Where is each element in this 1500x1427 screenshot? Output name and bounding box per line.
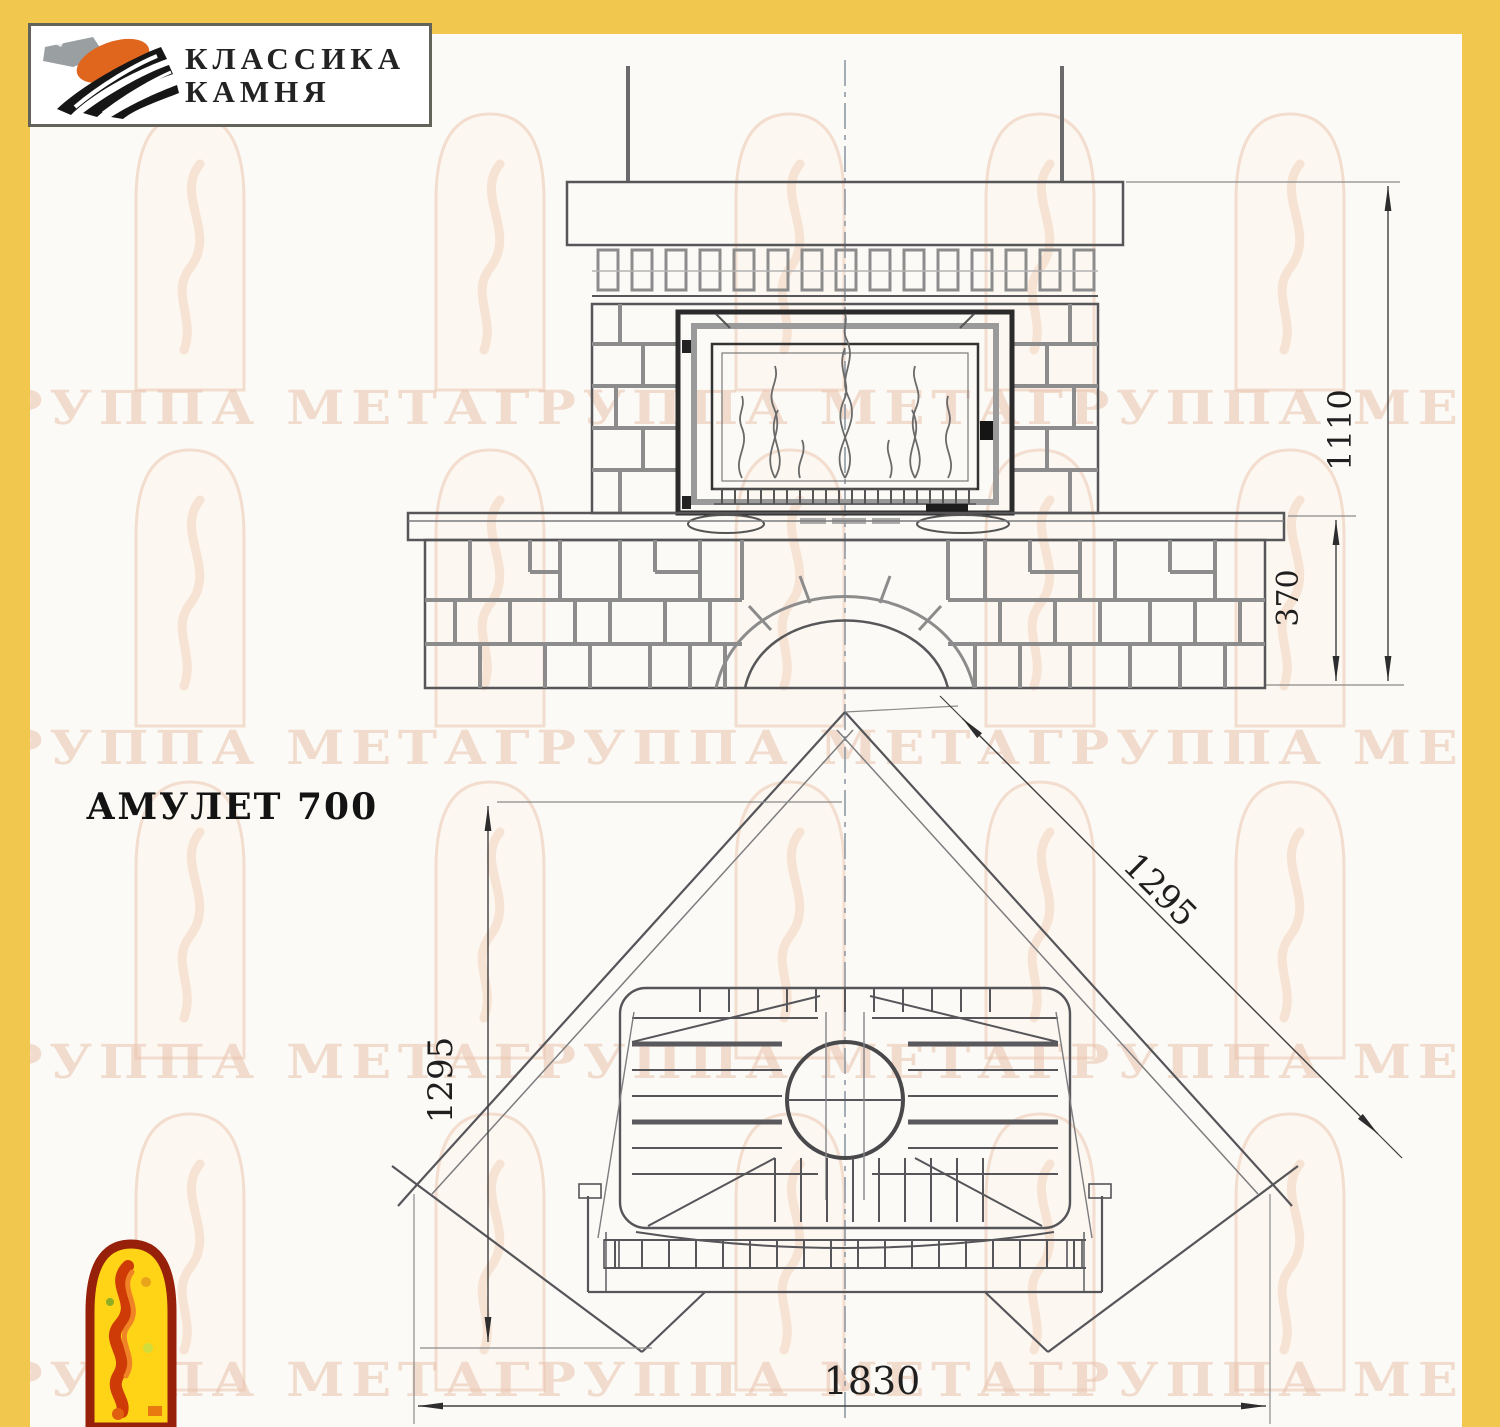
technical-drawing: ГРУППА МЕТАГРУППА МЕТАГРУППА МЕТА ГРУППА… <box>0 0 1500 1427</box>
dim-label-depth-right: 1295 <box>1115 845 1204 934</box>
watermark-row: ГРУППА МЕТАГРУППА МЕТАГРУППА МЕТА <box>0 721 1500 776</box>
frame-left-bar <box>0 0 30 1427</box>
company-emblem <box>90 1244 172 1427</box>
brand-name-line2: КАМНЯ <box>185 75 405 108</box>
dim-label-total-height: 1110 <box>1321 389 1359 470</box>
emblem-dot <box>106 1298 114 1306</box>
model-title: АМУЛЕТ 700 <box>86 786 378 828</box>
door-handle <box>980 421 993 440</box>
watermark-row: ГРУППА МЕТАГРУППА МЕТАГРУППА МЕТА <box>0 1353 1500 1408</box>
emblem-dot <box>143 1343 153 1353</box>
dim-label-depth-left: 1295 <box>421 1037 461 1124</box>
emblem-dot <box>112 1408 124 1420</box>
hinge-bottom <box>682 496 691 509</box>
emblem-dot <box>141 1277 151 1287</box>
brand-name: КЛАССИКА КАМНЯ <box>185 42 405 108</box>
brand-logo-box: КЛАССИКА КАМНЯ <box>28 23 432 127</box>
watermark-row: ГРУППА МЕТАГРУППА МЕТАГРУППА МЕТА <box>0 381 1500 436</box>
brand-name-line1: КЛАССИКА <box>185 42 405 75</box>
page: ГРУППА МЕТАГРУППА МЕТАГРУППА МЕТА ГРУППА… <box>0 0 1500 1427</box>
dim-label-bench-height: 370 <box>1271 569 1306 626</box>
hinge-top <box>682 340 691 353</box>
emblem-dot <box>148 1406 162 1416</box>
dim-label-front-width: 1830 <box>824 1359 921 1403</box>
stone-logo-icon <box>31 29 183 121</box>
frame-right-bar <box>1462 0 1500 1427</box>
